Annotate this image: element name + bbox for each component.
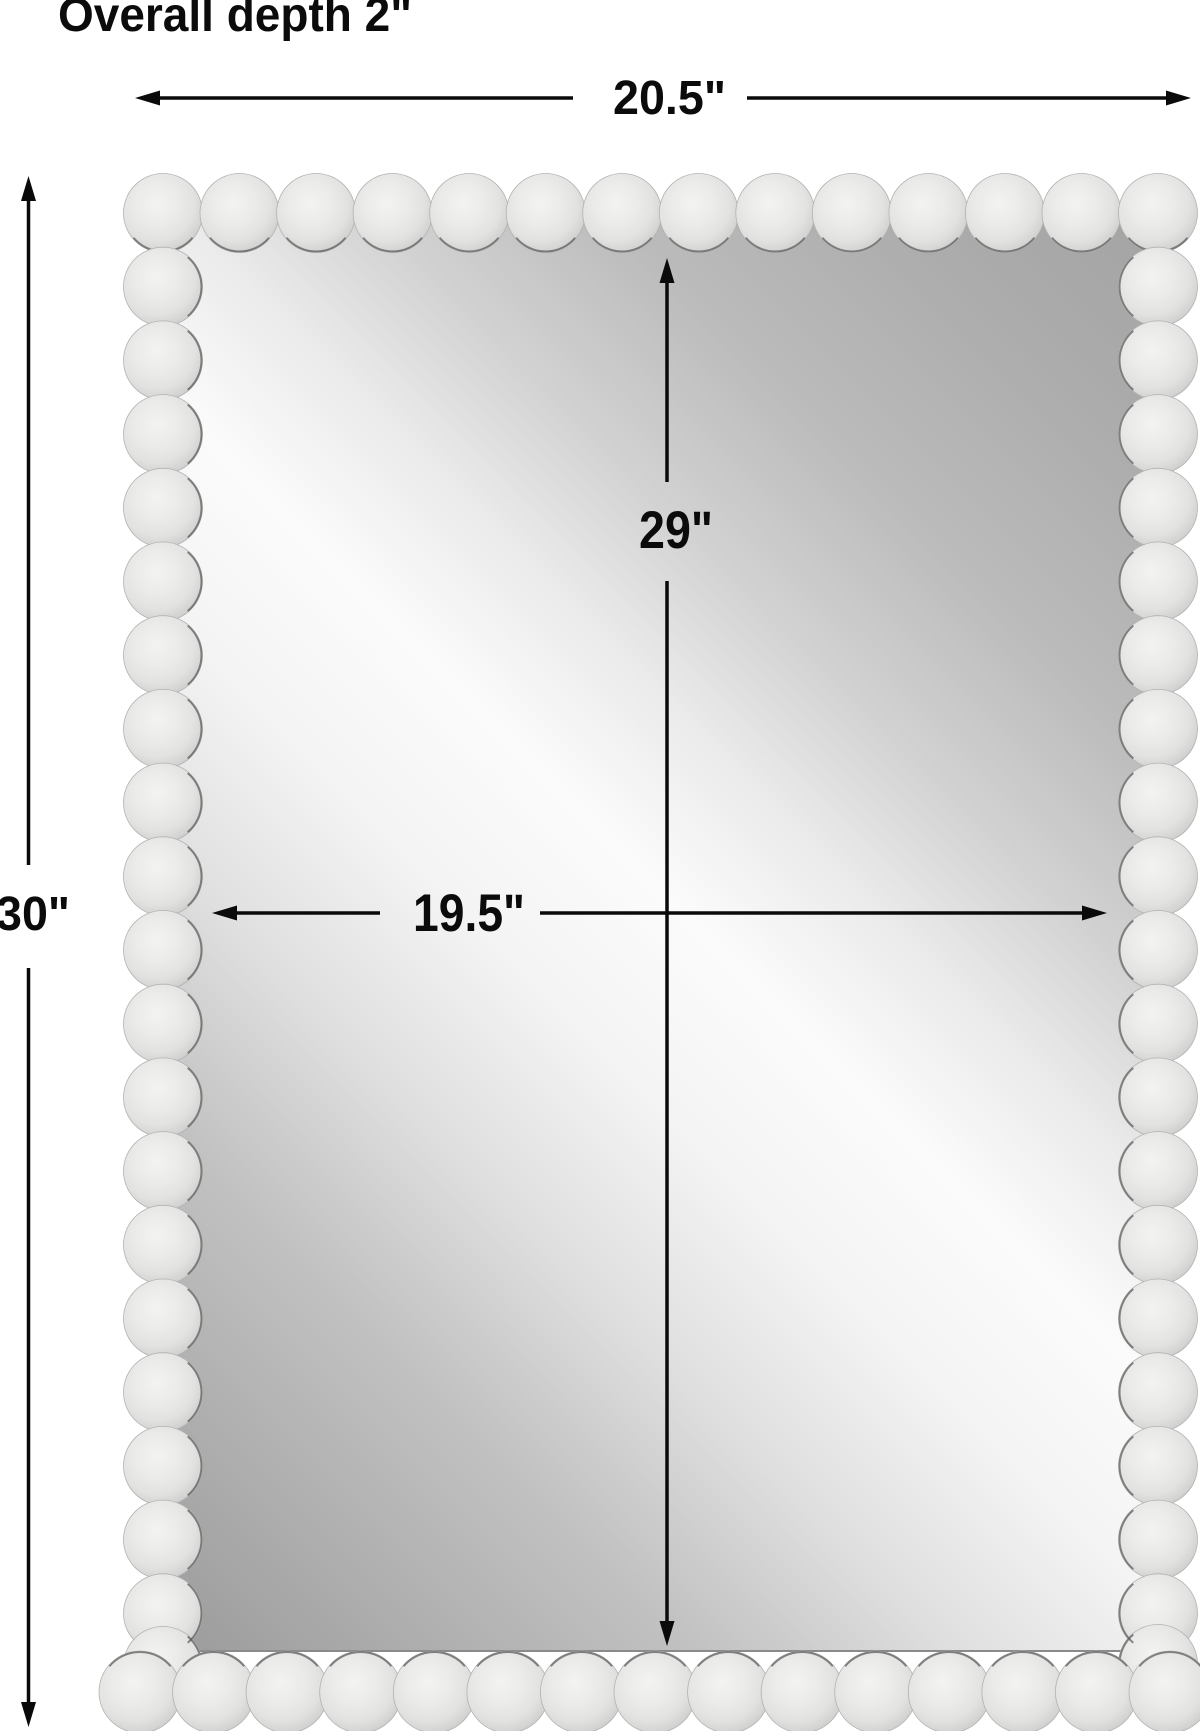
svg-text:19.5": 19.5": [413, 884, 525, 943]
svg-text:29": 29": [639, 501, 713, 560]
svg-text:30": 30": [0, 887, 70, 941]
svg-text:20.5": 20.5": [613, 71, 726, 125]
svg-text:Overall depth 2": Overall depth 2": [58, 0, 412, 42]
